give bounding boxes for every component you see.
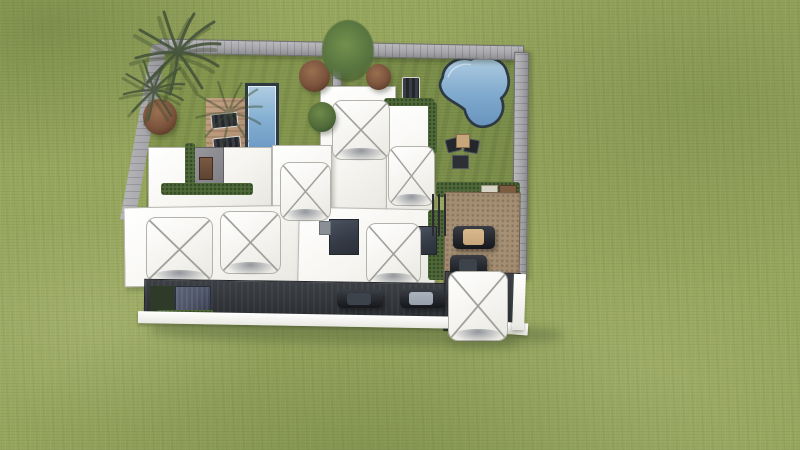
canopy-skylight-6 <box>366 223 421 285</box>
coffee-table <box>452 155 469 169</box>
roof-vent <box>319 221 331 235</box>
seating-table <box>456 134 470 148</box>
east-wing-hedge-top <box>384 98 434 106</box>
car-roof <box>409 292 433 305</box>
wing-hedge-horizontal <box>161 183 253 195</box>
aerial-site-view <box>0 0 800 450</box>
parked-car-tan-roof <box>453 226 495 249</box>
palm-tree-2 <box>118 54 190 126</box>
entrance-curb <box>512 274 526 330</box>
freeform-pool <box>428 52 516 136</box>
canopy-skylight-4 <box>146 217 213 282</box>
canopy-skylight-2 <box>388 146 435 206</box>
car-roof <box>463 229 484 245</box>
driveway-car-1 <box>337 290 383 308</box>
driveway-car-2 <box>400 289 445 308</box>
car-roof <box>347 293 371 305</box>
villa-compound <box>0 0 800 450</box>
roof-courtyard-opening <box>329 219 359 255</box>
canopy-skylight-5 <box>220 211 281 274</box>
palm-tree-3 <box>190 74 268 152</box>
tree-canopy <box>322 20 374 82</box>
court-fence <box>432 194 448 236</box>
service-door <box>199 157 213 180</box>
entrance-canopy <box>448 271 508 341</box>
canopy-skylight-1 <box>332 100 390 160</box>
canopy-skylight-3 <box>280 162 331 221</box>
shrub-green-1 <box>308 102 336 132</box>
